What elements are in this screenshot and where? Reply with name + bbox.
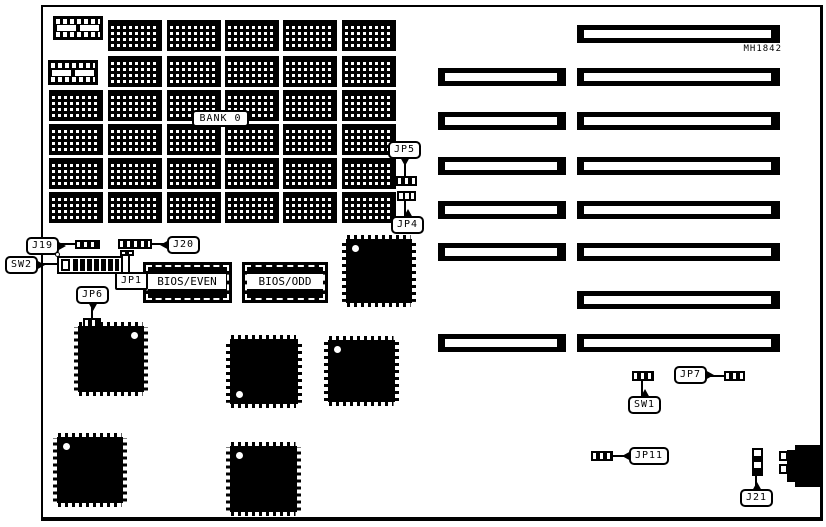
memory-chip: [342, 192, 396, 223]
memory-chip: [108, 56, 162, 87]
callout-sw1: SW1: [628, 396, 661, 414]
motherboard-diagram: MH1842 BANK 0 BIOS/EVEN BIOS/ODD: [0, 0, 826, 527]
qfp-chip: [57, 437, 123, 503]
memory-chip: [108, 192, 162, 223]
memory-chip: [342, 158, 396, 189]
callout-j19-pointer: [57, 241, 66, 251]
memory-socket-empty: [53, 16, 103, 40]
callout-sw2-label: SW2: [11, 259, 32, 270]
expansion-slot-short: [438, 201, 566, 219]
expansion-slot-short: [438, 112, 566, 130]
memory-chip: [283, 20, 337, 51]
callout-jp4-label: JP4: [397, 219, 418, 230]
pin1-dot: [334, 346, 341, 353]
sw1-connector: [632, 371, 654, 381]
j21-connector: [752, 448, 763, 476]
pin1-dot: [131, 332, 138, 339]
callout-jp5-pointer: [400, 157, 410, 166]
jp6-connector: [83, 318, 101, 328]
expansion-slot-long: [577, 112, 780, 130]
memory-chip: [167, 192, 221, 223]
memory-chip: [49, 192, 103, 223]
sw2-dip-switch: [57, 256, 123, 274]
expansion-slot-short: [438, 334, 566, 352]
qfp-chip: [328, 340, 395, 402]
j19-connector: [75, 240, 100, 249]
expansion-slot-short: [438, 243, 566, 261]
sw2-switch-bank: [73, 259, 119, 271]
memory-chip: [108, 20, 162, 51]
expansion-slot-long: [577, 68, 780, 86]
callout-jp4-pointer: [403, 209, 413, 218]
callout-jp7-label: JP7: [680, 369, 701, 380]
keyboard-connector-tab-bottom: [779, 464, 788, 474]
memory-chip: [225, 124, 279, 155]
memory-chip: [225, 20, 279, 51]
callout-j20-pointer: [160, 240, 169, 250]
memory-socket-empty: [48, 60, 98, 85]
keyboard-connector-collar: [787, 450, 797, 482]
sw2-pin1-marker: [55, 252, 60, 257]
memory-chip: [49, 124, 103, 155]
socket-slots: [57, 25, 99, 31]
bios-even-chip: BIOS/EVEN: [143, 262, 232, 303]
memory-chip: [342, 90, 396, 121]
callout-jp4: JP4: [391, 216, 424, 234]
keyboard-connector-body: [795, 445, 823, 487]
memory-chip: [108, 124, 162, 155]
callout-j21-label: J21: [746, 492, 767, 503]
jp5-connector: [396, 176, 417, 186]
memory-chip: [283, 90, 337, 121]
callout-j20: J20: [167, 236, 200, 254]
callout-jp6-pointer: [88, 302, 98, 311]
memory-chip: [49, 158, 103, 189]
memory-chip: [283, 192, 337, 223]
expansion-slot-short: [438, 68, 566, 86]
callout-jp11: JP11: [629, 447, 669, 465]
pin1-dot: [352, 245, 359, 252]
callout-jp1-label: JP1: [121, 275, 142, 286]
callout-jp7: JP7: [674, 366, 707, 384]
sw2-switch-open: [61, 259, 70, 271]
memory-chip: [167, 20, 221, 51]
expansion-slot-long: [577, 25, 780, 43]
expansion-slot-long: [577, 157, 780, 175]
qfp-chip: [230, 446, 297, 512]
jp7-connector: [724, 371, 745, 381]
expansion-slot-long: [577, 201, 780, 219]
bios-odd-chip: BIOS/ODD: [242, 262, 328, 303]
bios-odd-label: BIOS/ODD: [247, 274, 323, 289]
pin1-dot: [236, 452, 243, 459]
callout-jp5: JP5: [388, 141, 421, 159]
memory-chip: [283, 56, 337, 87]
memory-chip: [108, 158, 162, 189]
memory-chip: [225, 56, 279, 87]
memory-chip: [342, 20, 396, 51]
bank0-label: BANK 0: [192, 110, 249, 127]
callout-j19-label: J19: [32, 240, 53, 251]
callout-j20-label: J20: [173, 239, 194, 250]
callout-sw1-label: SW1: [634, 399, 655, 410]
callout-j21-pointer: [752, 482, 762, 491]
qfp-chip: [230, 339, 298, 404]
jp11-connector: [591, 451, 613, 461]
part-number: MH1842: [720, 44, 782, 54]
callout-jp6: JP6: [76, 286, 109, 304]
memory-chip: [283, 124, 337, 155]
callout-sw1-pointer: [640, 389, 650, 398]
memory-chip: [167, 158, 221, 189]
leader-jp1: [128, 256, 130, 273]
memory-chip: [342, 56, 396, 87]
callout-j21: J21: [740, 489, 773, 507]
callout-j19: J19: [26, 237, 59, 255]
expansion-slot-long: [577, 243, 780, 261]
expansion-slot-long: [577, 291, 780, 309]
callout-jp1: JP1: [115, 272, 148, 290]
callout-jp6-label: JP6: [82, 289, 103, 300]
pin1-dot: [236, 391, 243, 398]
memory-chip: [167, 56, 221, 87]
memory-chip: [167, 124, 221, 155]
memory-chip: [225, 158, 279, 189]
j20-connector: [118, 239, 152, 249]
memory-chip: [49, 90, 103, 121]
callout-jp11-label: JP11: [635, 450, 663, 461]
callout-sw2: SW2: [5, 256, 38, 274]
qfp-chip: [78, 326, 144, 392]
memory-chip: [225, 192, 279, 223]
expansion-slot-short: [438, 157, 566, 175]
pin1-dot: [63, 443, 70, 450]
callout-jp11-pointer: [622, 451, 631, 461]
callout-sw2-pointer: [36, 260, 45, 270]
callout-jp5-label: JP5: [394, 144, 415, 155]
bios-even-label: BIOS/EVEN: [148, 274, 226, 289]
jp4-connector: [397, 191, 416, 201]
callout-jp7-pointer: [705, 370, 714, 380]
qfp-chip: [346, 239, 412, 303]
socket-slots: [52, 70, 94, 76]
memory-chip: [108, 90, 162, 121]
keyboard-connector-tab-top: [779, 451, 788, 461]
expansion-slot-long: [577, 334, 780, 352]
memory-chip: [283, 158, 337, 189]
